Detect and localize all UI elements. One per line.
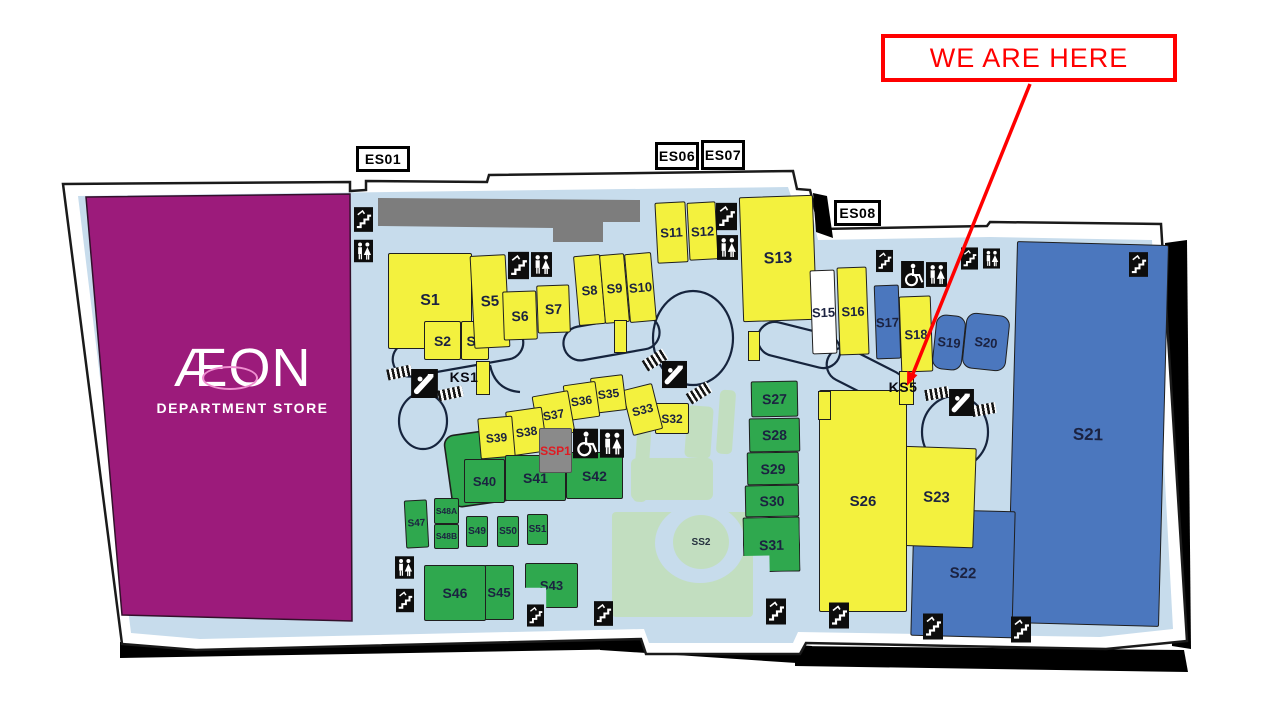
- store-label: S50: [499, 527, 517, 537]
- store-S10: S10: [624, 252, 657, 323]
- store-SSP1: SSP1: [539, 428, 572, 473]
- kiosk-label-KS1: KS1: [447, 369, 481, 385]
- ss2-area-label: SS2: [684, 534, 718, 550]
- store-S33: S33: [622, 383, 663, 436]
- store-label: S13: [763, 250, 792, 267]
- entrance-label-ES08: ES08: [834, 200, 881, 226]
- store-label: S43: [540, 579, 563, 592]
- department-store-label: DEPARTMENT STORE: [150, 400, 335, 416]
- store-label: S21: [1073, 425, 1104, 443]
- store-label: S17: [876, 315, 900, 329]
- store-S18: S18: [899, 295, 934, 372]
- aeon-logo: ÆON DEPARTMENT STORE: [150, 338, 335, 438]
- we-are-here-callout: WE ARE HERE: [881, 34, 1177, 82]
- store-label: S30: [759, 494, 784, 508]
- restroom-icon: [600, 428, 624, 459]
- entrance-label-ES01: ES01: [356, 146, 410, 172]
- store-label: S23: [923, 489, 950, 505]
- store-label: S26: [850, 494, 877, 509]
- store-label: S38: [515, 424, 538, 439]
- wheelchair-icon: [573, 428, 598, 459]
- store-S50: S50: [497, 516, 519, 547]
- store-label: S36: [570, 394, 593, 409]
- stairs-icon: [716, 202, 737, 231]
- store-label: S20: [974, 334, 998, 349]
- store-S29: S29: [747, 452, 800, 486]
- store-S48B: S48B: [434, 524, 459, 549]
- store-label: S28: [762, 428, 787, 442]
- escalator-icon: [411, 369, 438, 398]
- store-S17: S17: [874, 285, 902, 360]
- store-S51: S51: [527, 514, 548, 545]
- store-label: S6: [511, 308, 529, 323]
- store-label: S7: [545, 302, 563, 317]
- store-S13: S13: [739, 195, 817, 323]
- stairs-icon: [508, 251, 529, 280]
- store-label: S46: [443, 586, 468, 600]
- store-label: S45: [487, 586, 510, 599]
- store-S26: S26: [819, 390, 907, 612]
- store-label: S40: [473, 475, 496, 488]
- crosswalk-hatch: [924, 386, 950, 401]
- store-S2: S2: [424, 321, 461, 360]
- stairs-icon: [1011, 615, 1031, 644]
- crosswalk-hatch: [686, 382, 713, 405]
- kiosk-marker: [748, 331, 760, 361]
- store-label: SSP1: [540, 445, 571, 457]
- stairs-icon: [829, 601, 849, 630]
- store-label: S15: [812, 305, 836, 319]
- store-label: S51: [529, 525, 547, 535]
- store-S7: S7: [536, 284, 571, 333]
- store-label: S5: [480, 294, 499, 310]
- store-S40: S40: [464, 459, 505, 503]
- escalator-icon: [949, 389, 974, 416]
- store-S27: S27: [751, 381, 799, 418]
- store-label: S48A: [436, 507, 457, 516]
- store-label: S10: [628, 280, 652, 295]
- store-S30: S30: [745, 485, 800, 518]
- restroom-icon: [531, 250, 552, 279]
- store-S11: S11: [654, 201, 688, 264]
- entrance-label-ES06: ES06: [655, 142, 699, 170]
- restroom-icon: [717, 234, 738, 261]
- entrance-label-ES07: ES07: [701, 140, 745, 170]
- store-S15: S15: [810, 270, 838, 355]
- store-S16: S16: [836, 267, 869, 356]
- stairs-icon: [766, 597, 786, 626]
- store-label: S41: [523, 471, 548, 485]
- store-label: S19: [937, 335, 961, 350]
- store-S19: S19: [931, 314, 967, 372]
- store-label: S49: [468, 527, 486, 537]
- store-label: S1: [420, 293, 440, 309]
- stairs-icon: [1129, 250, 1148, 279]
- stairs-icon: [527, 601, 544, 630]
- store-label: S16: [841, 304, 865, 318]
- store-S28: S28: [749, 418, 801, 453]
- store-label: S29: [760, 461, 785, 475]
- stairs-icon: [594, 600, 613, 627]
- stairs-icon: [961, 246, 978, 271]
- store-label: S8: [581, 283, 598, 297]
- kiosk-label-KS5: KS5: [884, 379, 922, 395]
- stairs-icon: [396, 586, 414, 615]
- wheelchair-icon: [901, 261, 924, 288]
- store-S45: S45: [484, 565, 514, 620]
- kiosk-marker: [818, 391, 831, 420]
- restroom-icon: [926, 261, 947, 288]
- store-S49: S49: [466, 516, 488, 547]
- store-S31: S31: [743, 517, 801, 573]
- store-label: S39: [485, 431, 507, 445]
- store-S48A: S48A: [434, 498, 459, 524]
- store-S12: S12: [687, 201, 719, 260]
- store-S23: S23: [896, 446, 976, 549]
- crosswalk-hatch: [386, 365, 413, 381]
- restroom-icon: [983, 246, 1000, 271]
- store-label: S9: [606, 281, 623, 295]
- store-label: S47: [407, 519, 425, 530]
- store-label: S27: [762, 392, 787, 406]
- store-label: S12: [691, 224, 715, 238]
- store-label: S37: [542, 407, 565, 423]
- store-label: S22: [949, 566, 976, 582]
- escalator-icon: [662, 359, 687, 390]
- store-S21: S21: [1007, 241, 1169, 627]
- store-label: S32: [661, 413, 682, 425]
- stairs-icon: [923, 612, 943, 641]
- store-label: S2: [434, 334, 451, 348]
- store-label: S48B: [436, 532, 457, 541]
- restroom-icon: [354, 237, 373, 265]
- restroom-icon: [395, 554, 414, 581]
- store-S47: S47: [404, 499, 429, 548]
- store-S42: S42: [566, 452, 623, 499]
- crosswalk-hatch: [437, 386, 464, 402]
- store-S20: S20: [961, 312, 1011, 372]
- store-label: S35: [597, 387, 620, 402]
- kiosk-marker: [614, 320, 627, 353]
- store-label: S11: [660, 225, 683, 239]
- stairs-icon: [876, 248, 893, 274]
- store-label: S31: [759, 537, 784, 551]
- store-label: S33: [631, 401, 655, 418]
- store-S39: S39: [477, 416, 515, 460]
- stairs-icon: [354, 206, 373, 233]
- mall-floorplan: S1S2S3S5S6S7S8S9S10S11S12S13S15S16S17S18…: [0, 0, 1280, 720]
- aeon-logo-ellipse: [202, 366, 258, 390]
- store-S46: S46: [424, 565, 486, 621]
- store-label: S18: [904, 327, 928, 341]
- store-label: S42: [582, 469, 607, 483]
- crosswalk-hatch: [971, 402, 997, 417]
- store-S6: S6: [502, 290, 538, 340]
